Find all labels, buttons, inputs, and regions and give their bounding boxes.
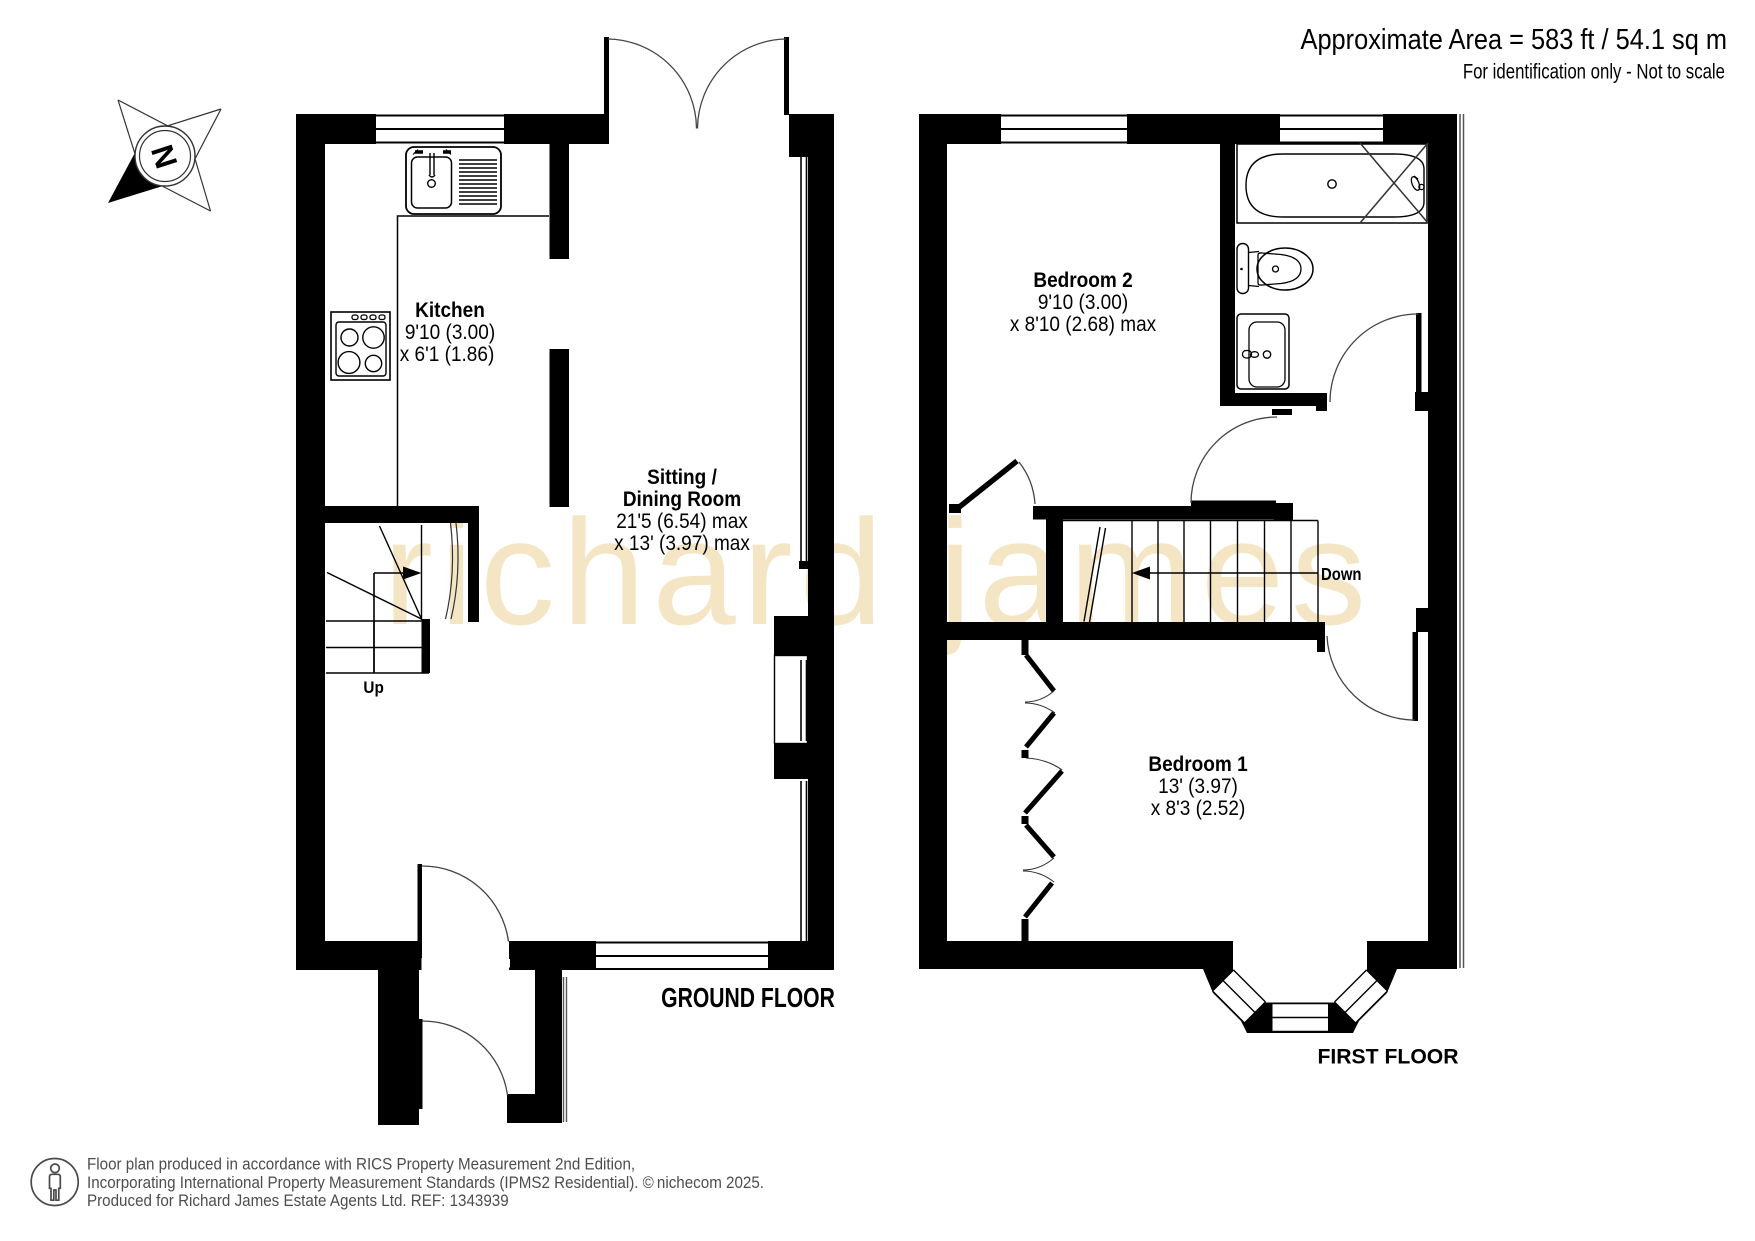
svg-text:Incorporating International Pr: Incorporating International Property Mea… xyxy=(87,1174,764,1192)
svg-text:13' (3.97): 13' (3.97) xyxy=(1158,775,1238,798)
svg-text:Bedroom 1: Bedroom 1 xyxy=(1148,753,1247,776)
svg-text:x 8'3 (2.52): x 8'3 (2.52) xyxy=(1151,797,1246,820)
svg-text:Dining Room: Dining Room xyxy=(623,488,741,511)
svg-text:x 13' (3.97) max: x 13' (3.97) max xyxy=(614,532,750,555)
svg-text:9'10 (3.00): 9'10 (3.00) xyxy=(1038,291,1128,314)
svg-text:9'10 (3.00): 9'10 (3.00) xyxy=(405,321,495,344)
svg-text:x 6'1 (1.86): x 6'1 (1.86) xyxy=(400,343,495,366)
svg-text:Approximate Area = 583 ft / 54: Approximate Area = 583 ft / 54.1 sq m xyxy=(1301,22,1727,55)
svg-text:Sitting /: Sitting / xyxy=(647,466,717,489)
svg-text:Down: Down xyxy=(1321,565,1361,584)
svg-text:Floor plan produced in accorda: Floor plan produced in accordance with R… xyxy=(87,1156,635,1174)
svg-text:GROUND FLOOR: GROUND FLOOR xyxy=(661,983,835,1013)
svg-text:Bedroom 2: Bedroom 2 xyxy=(1033,269,1132,292)
svg-text:x 8'10 (2.68) max: x 8'10 (2.68) max xyxy=(1010,313,1156,336)
svg-text:Produced for Richard James Est: Produced for Richard James Estate Agents… xyxy=(87,1192,509,1210)
svg-text:21'5 (6.54) max: 21'5 (6.54) max xyxy=(616,510,748,533)
svg-text:FIRST FLOOR: FIRST FLOOR xyxy=(1317,1044,1458,1068)
svg-text:For identification only - Not: For identification only - Not to scale xyxy=(1463,61,1725,84)
svg-text:Kitchen: Kitchen xyxy=(415,299,485,322)
svg-text:Up: Up xyxy=(363,678,383,697)
